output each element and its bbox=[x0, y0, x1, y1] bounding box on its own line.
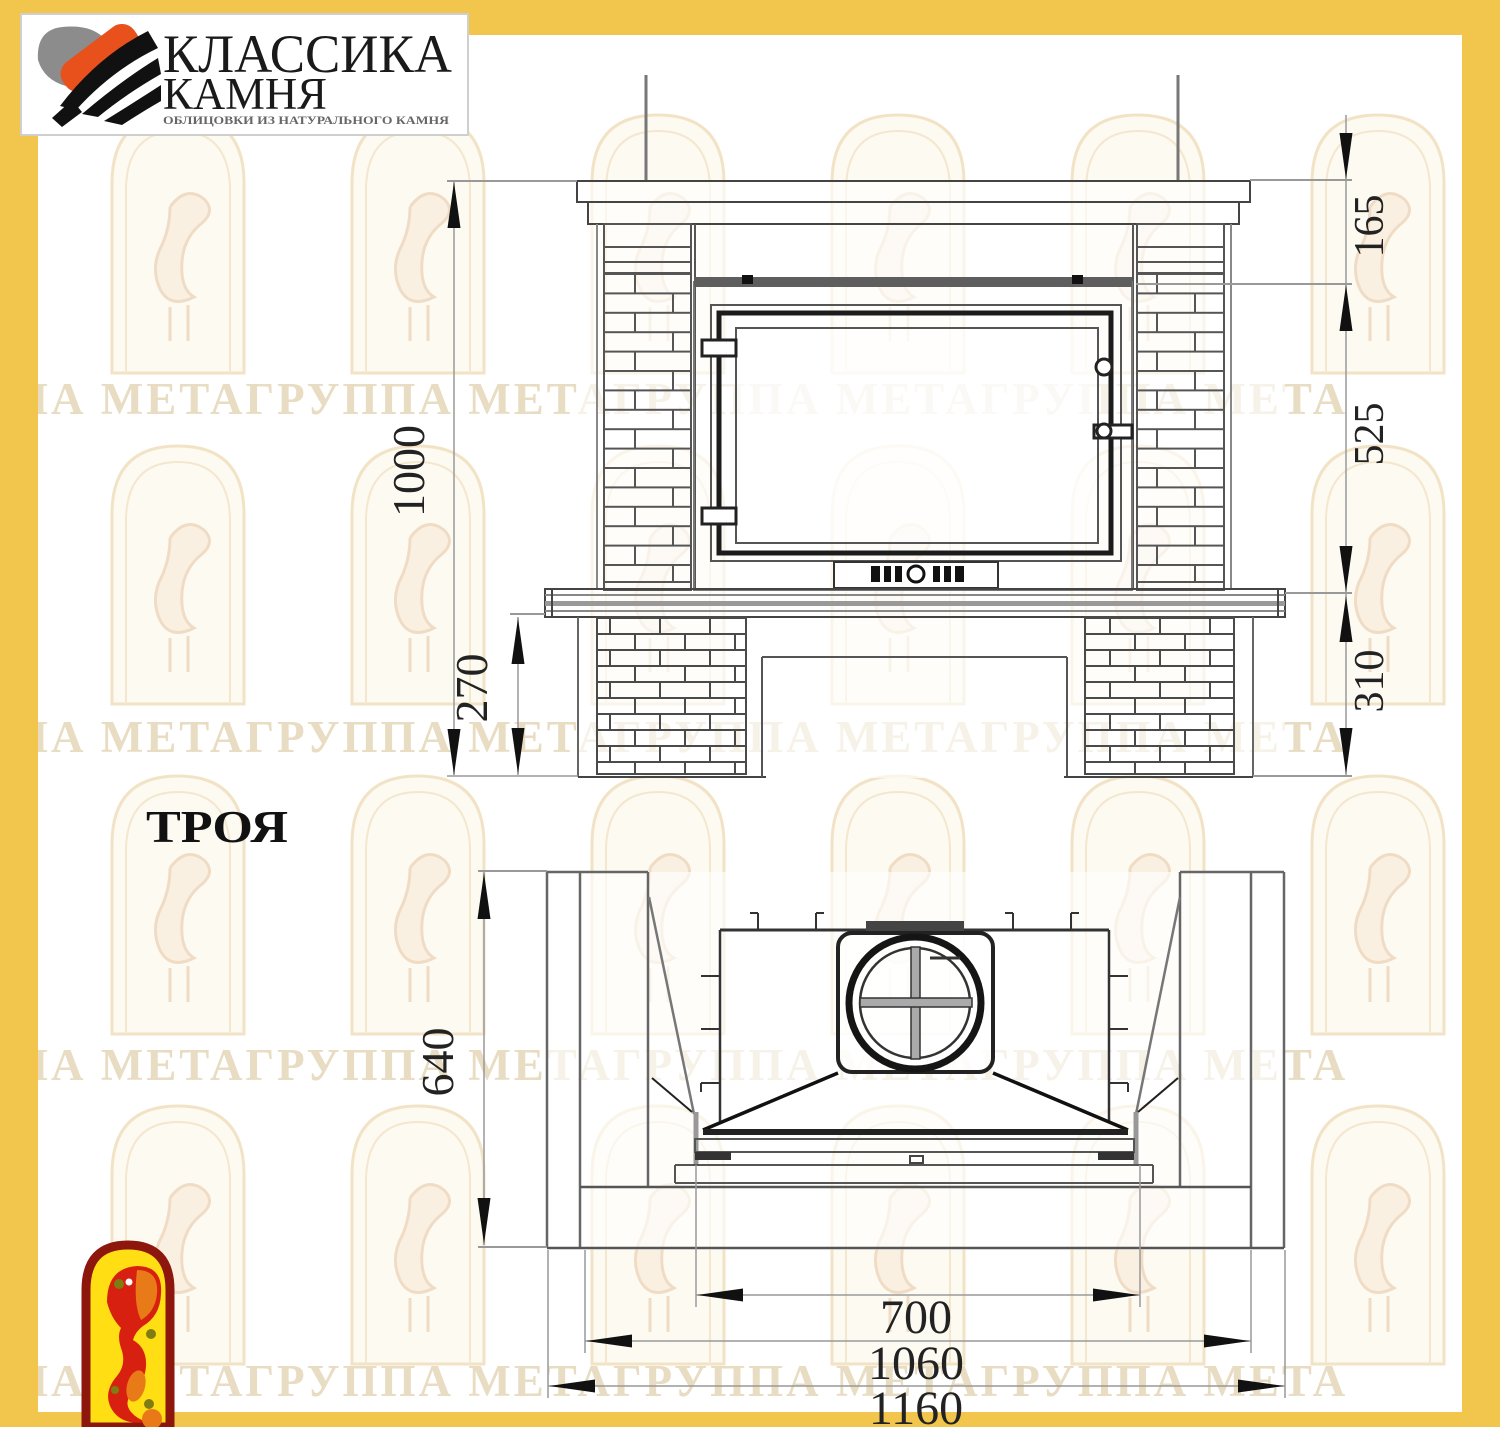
svg-text:270: 270 bbox=[446, 654, 497, 723]
svg-text:165: 165 bbox=[1347, 195, 1393, 258]
svg-text:310: 310 bbox=[1347, 650, 1393, 713]
svg-text:1000: 1000 bbox=[383, 425, 434, 517]
svg-text:640: 640 bbox=[412, 1028, 463, 1097]
svg-text:525: 525 bbox=[1347, 403, 1393, 466]
svg-text:1160: 1160 bbox=[869, 1382, 963, 1427]
svg-text:ОБЛИЦОВКИ ИЗ НАТУРАЛЬНОГО КАМН: ОБЛИЦОВКИ ИЗ НАТУРАЛЬНОГО КАМНЯ bbox=[163, 113, 449, 127]
svg-text:ППА МЕТАГРУППА МЕТАГРУППА МЕТА: ППА МЕТАГРУППА МЕТАГРУППА МЕТАГРУППА МЕТ… bbox=[0, 1356, 1348, 1406]
svg-text:КАМНЯ: КАМНЯ bbox=[163, 69, 327, 119]
svg-text:ТРОЯ: ТРОЯ bbox=[146, 801, 288, 852]
